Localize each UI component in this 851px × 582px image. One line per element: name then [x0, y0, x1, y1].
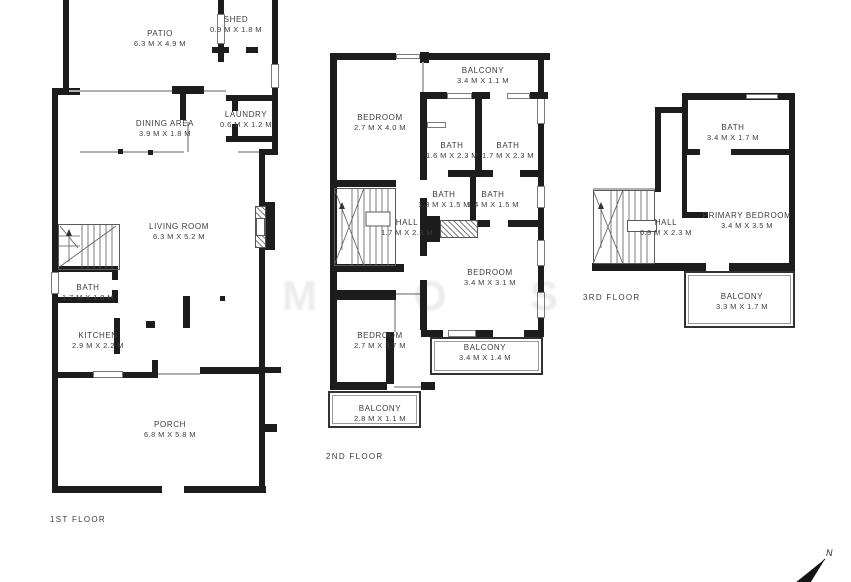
room-label-patio: PATIO 6.3 M X 4.9 M — [134, 29, 186, 49]
room-dims: 3.4 M X 1.7 M — [707, 133, 759, 143]
room-name: BATH — [467, 190, 519, 200]
wall — [63, 0, 69, 90]
room-label-living-room: LIVING ROOM 6.3 M X 5.2 M — [149, 222, 209, 242]
room-label-balcony-f3: BALCONY 3.3 M X 1.7 M — [716, 292, 768, 312]
room-name: BATH — [426, 141, 478, 151]
wall — [421, 382, 435, 390]
room-dims: 2.7 M X 4.0 M — [354, 123, 406, 133]
room-label-bedroom-upper: BEDROOM 2.7 M X 4.0 M — [354, 113, 406, 133]
opening-line — [394, 386, 421, 388]
room-dims: 1.7 M X 1.0 M — [62, 293, 114, 303]
room-name: BATH — [707, 123, 759, 133]
opening-line — [80, 151, 184, 153]
room-label-kitchen: KITCHEN 2.9 M X 2.2 M — [72, 331, 124, 351]
room-label-balcony-top: BALCONY 3.4 M X 1.1 M — [457, 66, 509, 86]
room-name: PRIMARY BEDROOM — [703, 211, 792, 221]
room-name: BEDROOM — [354, 331, 406, 341]
compass-n-label: N — [826, 548, 833, 558]
room-label-dining-area: DINING AREA 3.9 M X 1.8 M — [136, 119, 194, 139]
wall — [655, 107, 661, 192]
wall — [330, 290, 396, 300]
window — [256, 218, 265, 236]
wall-tick — [220, 296, 225, 301]
room-label-bath-4: BATH 1.4 M X 1.5 M — [467, 190, 519, 210]
room-name: HALL — [640, 218, 692, 228]
room-dims: 3.4 M X 3.5 M — [703, 221, 792, 231]
room-dims: 1.7 M X 2.3 M — [381, 228, 433, 238]
wall — [682, 93, 688, 153]
window — [537, 186, 545, 208]
watermark-letter: S — [530, 272, 566, 320]
room-label-bath-f1: BATH 1.7 M X 1.0 M — [62, 283, 114, 303]
room-dims: 3.4 M X 1.1 M — [457, 76, 509, 86]
room-name: LAUNDRY — [220, 110, 272, 120]
wall — [448, 170, 493, 177]
room-dims: 6.3 M X 4.9 M — [134, 39, 186, 49]
room-name: BALCONY — [716, 292, 768, 302]
window — [448, 330, 476, 337]
floor-label-3rd: 3RD FLOOR — [583, 293, 641, 302]
room-dims: 2.7 M X 3.7 M — [354, 341, 406, 351]
opening-line — [204, 90, 226, 92]
window — [537, 98, 545, 124]
room-label-bedroom-lower: BEDROOM 2.7 M X 3.7 M — [354, 331, 406, 351]
room-label-hall-f3: HALL 0.9 M X 2.3 M — [640, 218, 692, 238]
room-name: BALCONY — [457, 66, 509, 76]
room-label-laundry: LAUNDRY 0.6 M X 1.2 M — [220, 110, 272, 130]
wall — [475, 96, 482, 176]
wall — [330, 53, 396, 60]
wall — [212, 47, 229, 53]
wall — [682, 93, 795, 100]
window — [447, 93, 472, 99]
room-name: BALCONY — [354, 404, 406, 414]
wall — [524, 330, 540, 337]
wall — [520, 170, 544, 177]
room-label-bath-3: BATH 1.3 M X 1.5 M — [418, 190, 470, 210]
room-dims: 1.6 M X 2.3 M — [426, 151, 478, 161]
wall — [246, 47, 258, 53]
window — [507, 93, 530, 99]
window — [51, 272, 59, 294]
wall — [729, 263, 795, 271]
wall — [420, 242, 427, 256]
room-label-hall-f2: HALL 1.7 M X 2.3 M — [381, 218, 433, 238]
window — [396, 54, 420, 59]
room-label-porch: PORCH 6.8 M X 5.8 M — [144, 420, 196, 440]
floorplan-canvas: M O S — [0, 0, 851, 582]
room-name: PORCH — [144, 420, 196, 430]
wall — [180, 94, 186, 120]
room-name: HALL — [381, 218, 433, 228]
window — [271, 64, 279, 88]
room-name: BATH — [418, 190, 470, 200]
floor-label-2nd: 2ND FLOOR — [326, 452, 384, 461]
wall — [226, 136, 272, 142]
window — [93, 371, 123, 378]
room-dims: 1.3 M X 1.5 M — [418, 200, 470, 210]
room-label-balcony-right: BALCONY 3.4 M X 1.4 M — [459, 343, 511, 363]
room-label-bath-f3: BATH 3.4 M X 1.7 M — [707, 123, 759, 143]
room-dims: 2.9 M X 2.2 M — [72, 341, 124, 351]
floor-label-1st: 1ST FLOOR — [50, 515, 106, 524]
compass-north-icon: N — [792, 542, 850, 582]
wall — [478, 220, 490, 227]
wall — [508, 220, 538, 227]
room-name: SHED — [210, 15, 262, 25]
wall — [420, 170, 427, 180]
room-name: KITCHEN — [72, 331, 124, 341]
room-label-bath-1: BATH 1.6 M X 2.3 M — [426, 141, 478, 161]
room-dims: 3.4 M X 3.1 M — [464, 278, 516, 288]
wall — [592, 263, 706, 271]
wall — [146, 321, 155, 328]
room-dims: 2.8 M X 1.1 M — [354, 414, 406, 424]
window — [427, 122, 446, 128]
wall — [172, 86, 204, 94]
room-label-shed: SHED 0.9 M X 1.8 M — [210, 15, 262, 35]
room-name: BEDROOM — [464, 268, 516, 278]
wall — [731, 149, 791, 155]
opening-line — [69, 90, 172, 92]
room-dims: 0.6 M X 1.2 M — [220, 120, 272, 130]
room-dims: 0.9 M X 2.3 M — [640, 228, 692, 238]
opening-line — [394, 300, 396, 332]
watermark-letter: O — [414, 272, 455, 320]
wall — [420, 53, 550, 60]
opening-line — [158, 373, 200, 375]
room-dims: 3.9 M X 1.8 M — [136, 129, 194, 139]
window — [537, 240, 545, 266]
room-name: LIVING ROOM — [149, 222, 209, 232]
watermark-letter: M — [282, 272, 325, 320]
room-dims: 3.3 M X 1.7 M — [716, 302, 768, 312]
room-label-bedroom-mid: BEDROOM 3.4 M X 3.1 M — [464, 268, 516, 288]
room-dims: 0.9 M X 1.8 M — [210, 25, 262, 35]
room-name: PATIO — [134, 29, 186, 39]
wall — [331, 382, 387, 390]
room-label-primary-bedroom: PRIMARY BEDROOM 3.4 M X 3.5 M — [703, 211, 792, 231]
staircase — [58, 224, 120, 270]
wall — [259, 149, 265, 374]
room-name: BALCONY — [459, 343, 511, 353]
room-dims: 3.4 M X 1.4 M — [459, 353, 511, 363]
room-name: DINING AREA — [136, 119, 194, 129]
room-label-balcony-bottom: BALCONY 2.8 M X 1.1 M — [354, 404, 406, 424]
room-dims: 1.7 M X 2.3 M — [482, 151, 534, 161]
wall — [259, 424, 277, 432]
room-dims: 6.8 M X 5.8 M — [144, 430, 196, 440]
window — [746, 94, 778, 99]
wall — [476, 330, 493, 337]
wall-tick — [148, 150, 153, 155]
room-dims: 6.3 M X 5.2 M — [149, 232, 209, 242]
room-name: BATH — [62, 283, 114, 293]
wall — [152, 360, 158, 378]
room-name: BEDROOM — [354, 113, 406, 123]
wall — [334, 180, 396, 187]
wall — [52, 95, 58, 493]
wall — [183, 296, 190, 328]
room-name: BATH — [482, 141, 534, 151]
hatched-skylight — [440, 220, 478, 238]
room-label-bath-2: BATH 1.7 M X 2.3 M — [482, 141, 534, 161]
wall — [184, 486, 266, 493]
wall — [682, 153, 687, 213]
wall — [530, 92, 548, 99]
opening-line — [422, 62, 424, 92]
room-dims: 1.4 M X 1.5 M — [467, 200, 519, 210]
wall — [789, 93, 795, 270]
wall — [421, 330, 443, 337]
wall — [200, 367, 262, 374]
wall-tick — [118, 149, 123, 154]
wall — [52, 486, 162, 493]
